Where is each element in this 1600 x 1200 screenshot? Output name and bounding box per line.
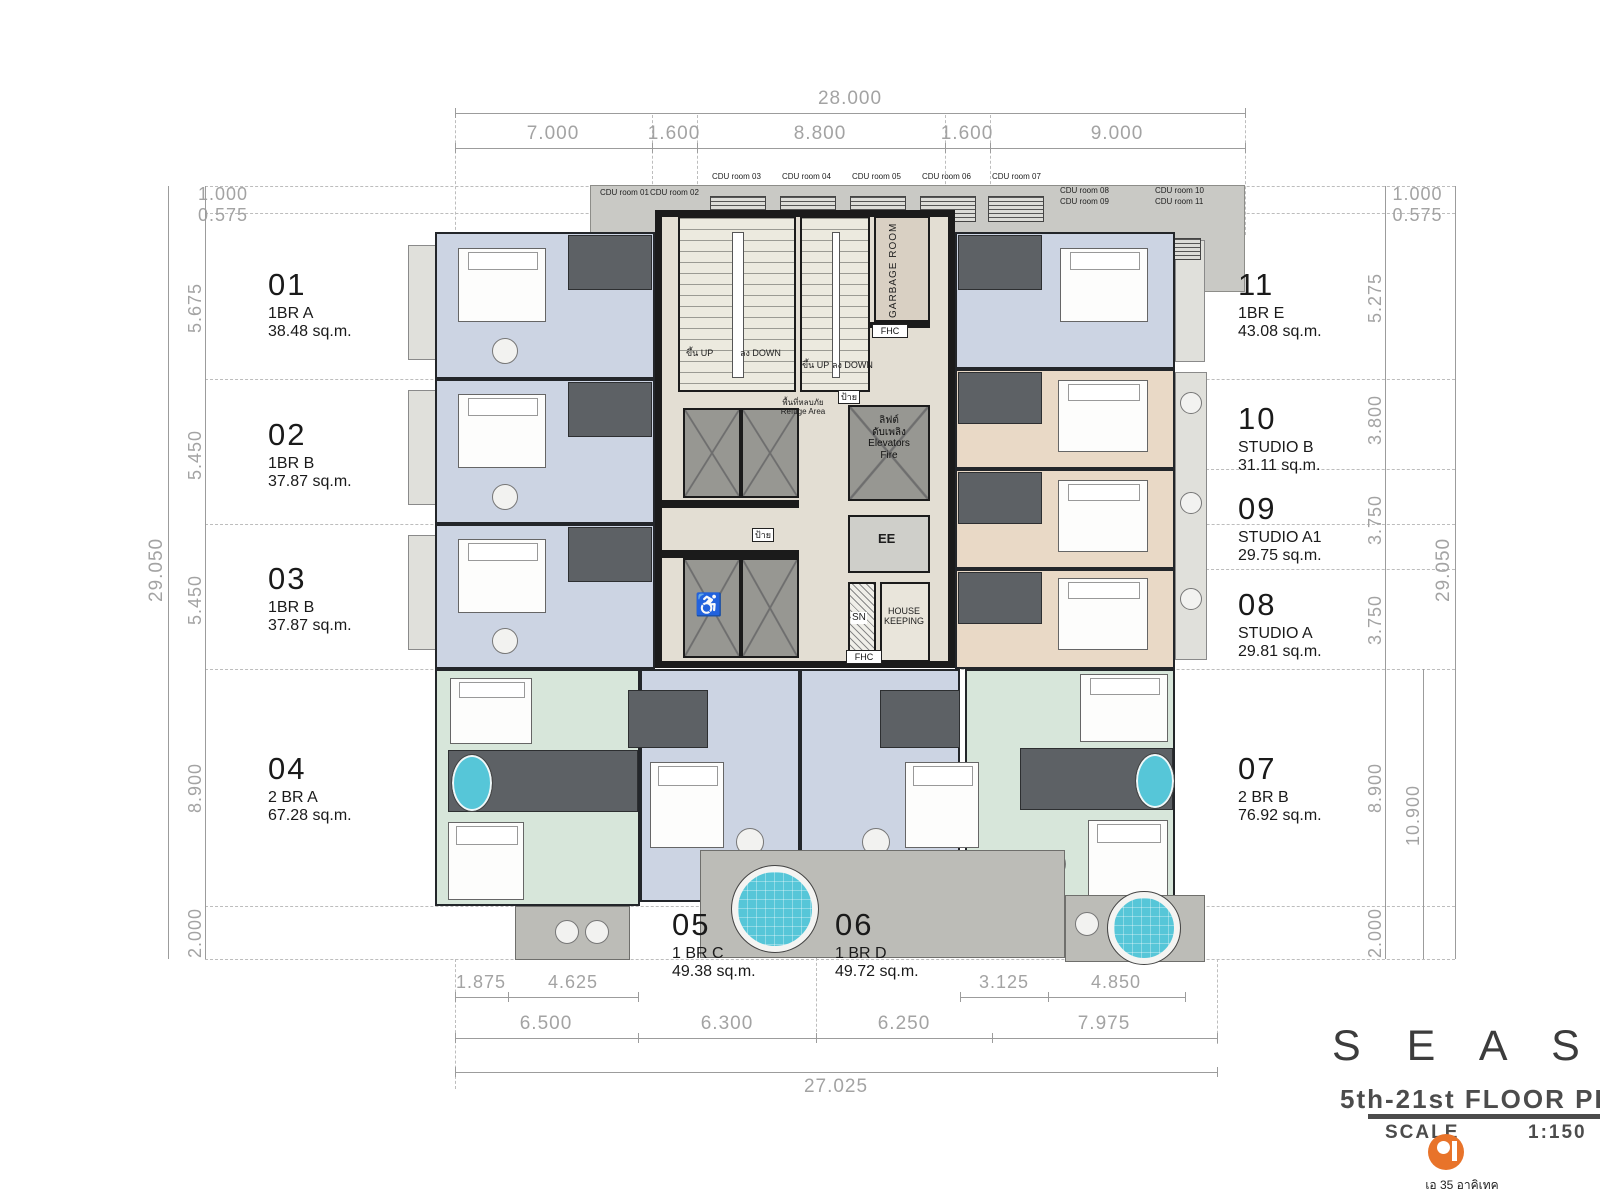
architect-logo-icon (1428, 1134, 1464, 1170)
stair-rail (832, 232, 839, 378)
unit-type: 1 BR C (672, 945, 756, 963)
dim-right-lower-total: 10.900 (1403, 770, 1424, 860)
dim-top-seg: 1.600 (634, 123, 714, 145)
pillow-icon (468, 252, 539, 270)
dim-top-seg: 9.000 (1077, 123, 1157, 145)
dim-tick (1217, 1033, 1218, 1043)
pillow-icon (468, 543, 539, 561)
dim-tick (1245, 108, 1246, 118)
dim-tick (1185, 992, 1186, 1002)
dim-line (455, 113, 1245, 114)
cdu-room-label: CDU room 07 (992, 172, 1041, 181)
unit-type: 1BR B (268, 455, 352, 473)
balcony (408, 390, 438, 505)
bathroom (958, 372, 1042, 424)
cdu-room-label: CDU room 06 (922, 172, 971, 181)
bathroom (958, 235, 1042, 290)
dim-line (455, 148, 1245, 149)
unit-area: 31.11 sq.m. (1238, 457, 1320, 475)
unit-label-10: 10 STUDIO B 31.11 sq.m. (1238, 402, 1320, 474)
fire-elevator-th2: ดับเพลิง (872, 427, 906, 438)
bed-icon (1060, 248, 1148, 322)
dim-tick (990, 143, 991, 153)
dim-tick (1048, 992, 1049, 1002)
stair-up-label: ขึ้น UP (802, 360, 829, 370)
grid-line (1245, 115, 1246, 235)
bed-icon (448, 822, 524, 900)
unit-number: 10 (1238, 402, 1320, 436)
grid-line (1217, 959, 1218, 1044)
stairs-left (678, 216, 796, 392)
scale-value: 1:150 (1528, 1122, 1587, 1144)
unit-number: 03 (268, 562, 352, 596)
unit-area: 29.75 sq.m. (1238, 547, 1322, 565)
unit-number: 01 (268, 268, 352, 302)
dim-bottom-r2: 6.500 (506, 1013, 586, 1035)
unit-type: 1 BR D (835, 945, 919, 963)
unit-area: 49.72 sq.m. (835, 963, 919, 981)
condenser-unit-icon (988, 196, 1044, 222)
ee-room-label: EE (878, 532, 895, 547)
fire-elevator-th1: ลิฟต์ (879, 415, 899, 426)
dim-bottom-r2: 6.300 (687, 1013, 767, 1035)
dim-tick (1217, 1067, 1218, 1077)
bed-icon (1058, 480, 1148, 552)
dim-line (455, 1072, 1217, 1073)
unit-label-04: 04 2 BR A 67.28 sq.m. (268, 752, 352, 824)
logo-detail (1452, 1141, 1457, 1161)
terrace-chair-icon (1075, 912, 1099, 936)
pillow-icon (459, 682, 525, 698)
wall (655, 500, 799, 508)
dim-tick (816, 1033, 817, 1043)
dim-tick (455, 108, 456, 118)
dim-line (455, 997, 638, 998)
dim-tick (960, 992, 961, 1002)
bed-icon (1058, 578, 1148, 650)
stair-up-label: ขึ้น UP (686, 348, 713, 358)
cdu-room-label: CDU room 03 (712, 172, 761, 181)
unit-type: 1BR E (1238, 305, 1322, 323)
unit-label-07: 07 2 BR B 76.92 sq.m. (1238, 752, 1322, 824)
pillow-icon (456, 826, 517, 845)
dim-tick (455, 992, 456, 1002)
bathroom (568, 235, 652, 290)
dim-top-seg: 1.600 (927, 123, 1007, 145)
fire-elevator-en2: Fire (880, 450, 897, 461)
wall (655, 550, 799, 558)
unit-type: 1BR A (268, 305, 352, 323)
logo-detail (1437, 1141, 1450, 1154)
dim-tick (508, 992, 509, 1002)
wheelchair-icon: ♿ (695, 592, 722, 617)
refuge-area-th: พื้นที่หลบภัย (782, 398, 823, 407)
unit-area: 43.08 sq.m. (1238, 323, 1322, 341)
unit-number: 09 (1238, 492, 1322, 526)
bathroom (568, 382, 652, 437)
sn-label: SN (851, 612, 867, 624)
dim-top-seg: 8.800 (780, 123, 860, 145)
dim-bottom-r1: 4.625 (538, 972, 608, 993)
pillow-icon (1090, 678, 1161, 695)
dim-left-offset1: 1.000 (193, 184, 248, 205)
bathroom (568, 527, 652, 582)
stair-down-label: ลง DOWN (740, 348, 781, 358)
cdu-room-label: CDU room 02 (650, 188, 699, 197)
dim-left-offset2: 0.575 (193, 205, 248, 226)
grid-line (205, 959, 1455, 960)
cdu-room-label: CDU room 08 (1060, 186, 1109, 195)
garbage-room-label: GARBAGE ROOM (888, 222, 900, 318)
dim-left-seg: 5.450 (185, 415, 206, 495)
bed-icon (1058, 380, 1148, 452)
dim-tick (638, 992, 639, 1002)
cdu-room-label: CDU room 09 (1060, 197, 1109, 206)
dim-right-seg: 3.750 (1365, 580, 1386, 660)
balcony (408, 535, 438, 650)
dim-bottom-r1: 3.125 (969, 972, 1039, 993)
pillow-icon (1070, 252, 1141, 270)
dim-bottom-r2: 7.975 (1064, 1013, 1144, 1035)
unit-label-11: 11 1BR E 43.08 sq.m. (1238, 268, 1322, 340)
cdu-room-label: CDU room 05 (852, 172, 901, 181)
stair-down-label: ลง DOWN (832, 360, 873, 370)
dim-right-seg: 5.275 (1365, 258, 1386, 338)
dim-right-seg: 8.900 (1365, 748, 1386, 828)
unit-label-05: 05 1 BR C 49.38 sq.m. (672, 908, 756, 980)
dim-tick (1245, 143, 1246, 153)
bed-icon (905, 762, 979, 848)
pillow-icon (1068, 582, 1140, 599)
garbage-room (874, 216, 930, 322)
sign-badge: ป้าย (752, 528, 774, 542)
elevator-shaft (741, 408, 799, 498)
bed-icon (1080, 674, 1168, 742)
dim-right-offset1: 1.000 (1390, 184, 1445, 205)
terrace-chair-icon (555, 920, 579, 944)
unit-area: 29.81 sq.m. (1238, 643, 1322, 661)
unit-area: 38.48 sq.m. (268, 323, 352, 341)
refuge-area-en: Refuge Area (781, 407, 825, 416)
fire-elevator-label: ลิฟต์ ดับเพลิง Elevators Fire (854, 415, 924, 461)
unit-label-03: 03 1BR B 37.87 sq.m. (268, 562, 352, 634)
unit-number: 07 (1238, 752, 1322, 786)
dim-right-seg: 3.800 (1365, 380, 1386, 460)
housekeeping-2: KEEPING (884, 616, 924, 626)
dim-bottom-overall: 27.025 (796, 1076, 876, 1098)
project-title: S E A S P I R E (1332, 1022, 1600, 1071)
bathtub-icon (1136, 754, 1174, 808)
unit-number: 05 (672, 908, 756, 942)
dim-left-seg: 2.000 (185, 898, 206, 968)
balcony (1175, 372, 1207, 660)
pillow-icon (658, 766, 718, 786)
balcony (408, 245, 438, 360)
table-icon (492, 628, 518, 654)
elevator-shaft (683, 408, 741, 498)
table-icon (492, 484, 518, 510)
unit-area: 67.28 sq.m. (268, 807, 352, 825)
title-divider (1368, 1114, 1600, 1119)
refuge-area-label: พื้นที่หลบภัย Refuge Area (768, 398, 838, 416)
bathtub-icon (452, 755, 492, 811)
unit-label-01: 01 1BR A 38.48 sq.m. (268, 268, 352, 340)
dim-right-seg: 2.000 (1365, 898, 1386, 968)
bed-icon (458, 539, 546, 613)
unit-area: 37.87 sq.m. (268, 617, 352, 635)
cdu-room-label: CDU room 11 (1155, 197, 1203, 206)
architect-firm-name: เอ 35 อาคิเทค (1402, 1176, 1522, 1195)
dim-line (1455, 186, 1456, 959)
fire-elevator-en1: Elevators (868, 438, 910, 449)
cdu-room-label: CDU room 01 (600, 188, 649, 197)
dim-left-seg: 8.900 (185, 748, 206, 828)
unit-type: 1BR B (268, 599, 352, 617)
housekeeping-1: HOUSE (888, 606, 920, 616)
fhc-badge: FHC (872, 324, 908, 338)
pillow-icon (913, 766, 973, 786)
dim-right-overall: 29.050 (1433, 525, 1455, 615)
dim-line (960, 997, 1185, 998)
dim-tick (652, 143, 653, 153)
bed-icon (458, 248, 546, 322)
unit-type: 2 BR B (1238, 789, 1322, 807)
floor-plan-title: 5th-21st FLOOR PLAN (1340, 1084, 1600, 1115)
grid-line (455, 115, 456, 235)
dim-top-overall: 28.000 (800, 88, 900, 110)
dim-left-seg: 5.675 (185, 268, 206, 348)
dim-right-seg: 3.750 (1365, 480, 1386, 560)
pillow-icon (468, 398, 539, 416)
bathroom (628, 690, 708, 748)
pillow-icon (1068, 484, 1140, 501)
terrace-chair-icon (585, 920, 609, 944)
dim-line (455, 1038, 1217, 1039)
sign-badge: ป้าย (838, 390, 860, 404)
balcony-table-icon (1180, 588, 1202, 610)
dim-tick (638, 1033, 639, 1043)
unit-number: 11 (1238, 268, 1322, 302)
unit-number: 06 (835, 908, 919, 942)
dim-bottom-r1: 1.875 (446, 972, 516, 993)
housekeeping-label: HOUSE KEEPING (884, 606, 924, 627)
dim-right-offset2: 0.575 (1390, 205, 1445, 226)
bathroom (880, 690, 960, 748)
unit-area: 49.38 sq.m. (672, 963, 756, 981)
pillow-icon (1097, 824, 1161, 843)
floor-plan-canvas: CDU room 01 CDU room 02 CDU room 03 CDU … (0, 0, 1600, 1200)
unit-type: STUDIO A (1238, 625, 1322, 643)
jacuzzi-icon (1108, 892, 1180, 964)
dim-tick (697, 143, 698, 153)
table-icon (492, 338, 518, 364)
unit-type: STUDIO B (1238, 439, 1320, 457)
unit-number: 02 (268, 418, 352, 452)
dim-bottom-r2: 6.250 (864, 1013, 944, 1035)
fhc-badge: FHC (846, 650, 882, 664)
dim-top-seg: 7.000 (513, 123, 593, 145)
cdu-room-label: CDU room 10 (1155, 186, 1204, 195)
bed-icon (650, 762, 724, 848)
dim-line (168, 186, 169, 959)
dim-left-seg: 5.450 (185, 560, 206, 640)
unit-number: 04 (268, 752, 352, 786)
bed-icon (458, 394, 546, 468)
cdu-room-label: CDU room 04 (782, 172, 831, 181)
bed-icon (1088, 820, 1168, 900)
dim-tick (945, 143, 946, 153)
unit-label-02: 02 1BR B 37.87 sq.m. (268, 418, 352, 490)
elevator-shaft (741, 558, 799, 658)
dim-tick (992, 1033, 993, 1043)
unit-number: 08 (1238, 588, 1322, 622)
dim-tick (455, 1033, 456, 1043)
unit-type: 2 BR A (268, 789, 352, 807)
dim-left-overall: 29.050 (146, 525, 168, 615)
dim-bottom-r1: 4.850 (1081, 972, 1151, 993)
dim-tick (455, 1067, 456, 1077)
balcony-table-icon (1180, 492, 1202, 514)
dim-tick (455, 143, 456, 153)
balcony-table-icon (1180, 392, 1202, 414)
bed-icon (450, 678, 532, 744)
unit-label-08: 08 STUDIO A 29.81 sq.m. (1238, 588, 1322, 660)
bathroom (958, 472, 1042, 524)
bathroom (958, 572, 1042, 624)
pillow-icon (1068, 384, 1140, 401)
unit-type: STUDIO A1 (1238, 529, 1322, 547)
unit-area: 37.87 sq.m. (268, 473, 352, 491)
unit-label-06: 06 1 BR D 49.72 sq.m. (835, 908, 919, 980)
unit-label-09: 09 STUDIO A1 29.75 sq.m. (1238, 492, 1322, 564)
unit-area: 76.92 sq.m. (1238, 807, 1322, 825)
